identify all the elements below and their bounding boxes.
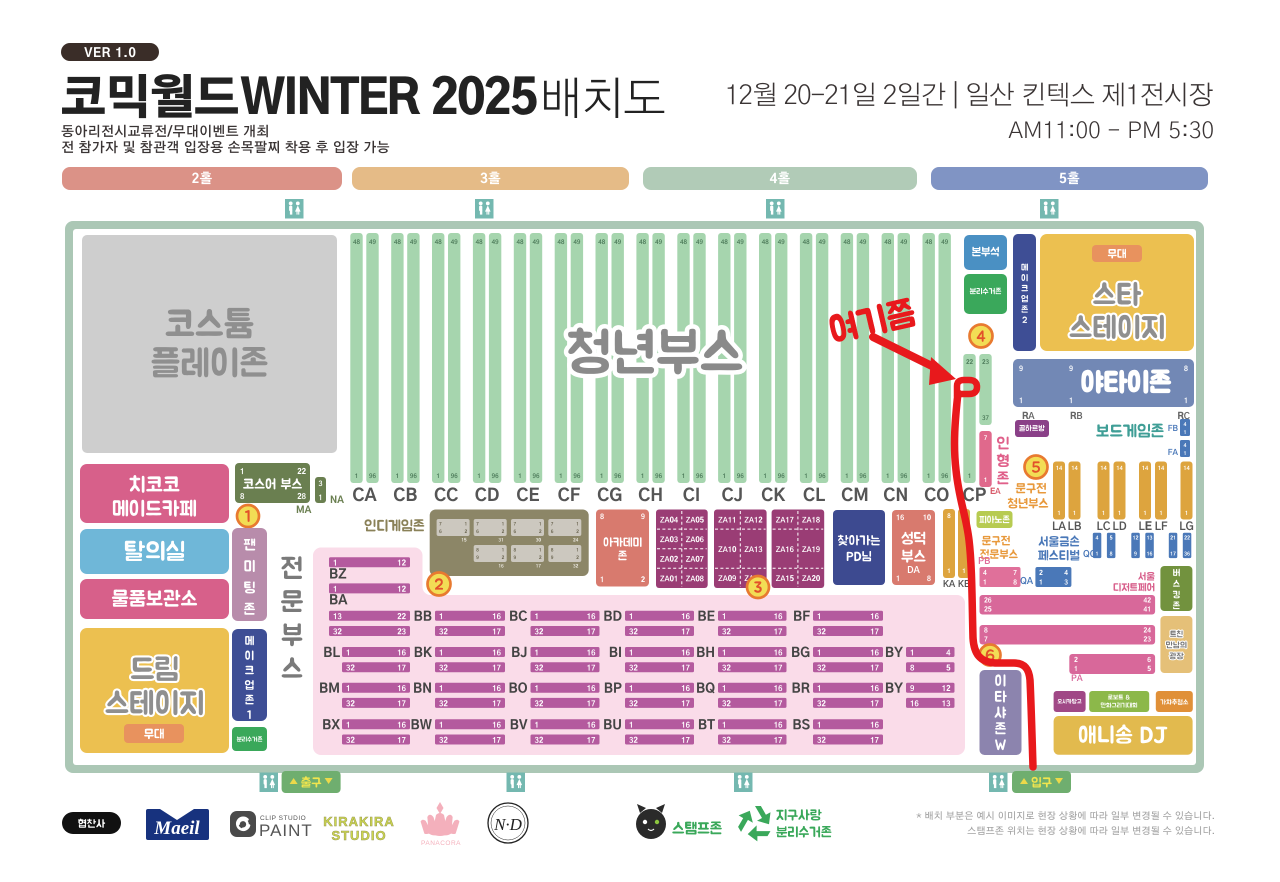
svg-text:PANACORA: PANACORA — [421, 840, 461, 847]
svg-text:Maeil: Maeil — [153, 818, 200, 839]
svg-text:STUDIO: STUDIO — [331, 828, 386, 843]
svg-text:N·D: N·D — [493, 815, 523, 834]
svg-text:KIRAKIRA: KIRAKIRA — [323, 814, 395, 829]
svg-text:PAINT: PAINT — [259, 821, 313, 840]
